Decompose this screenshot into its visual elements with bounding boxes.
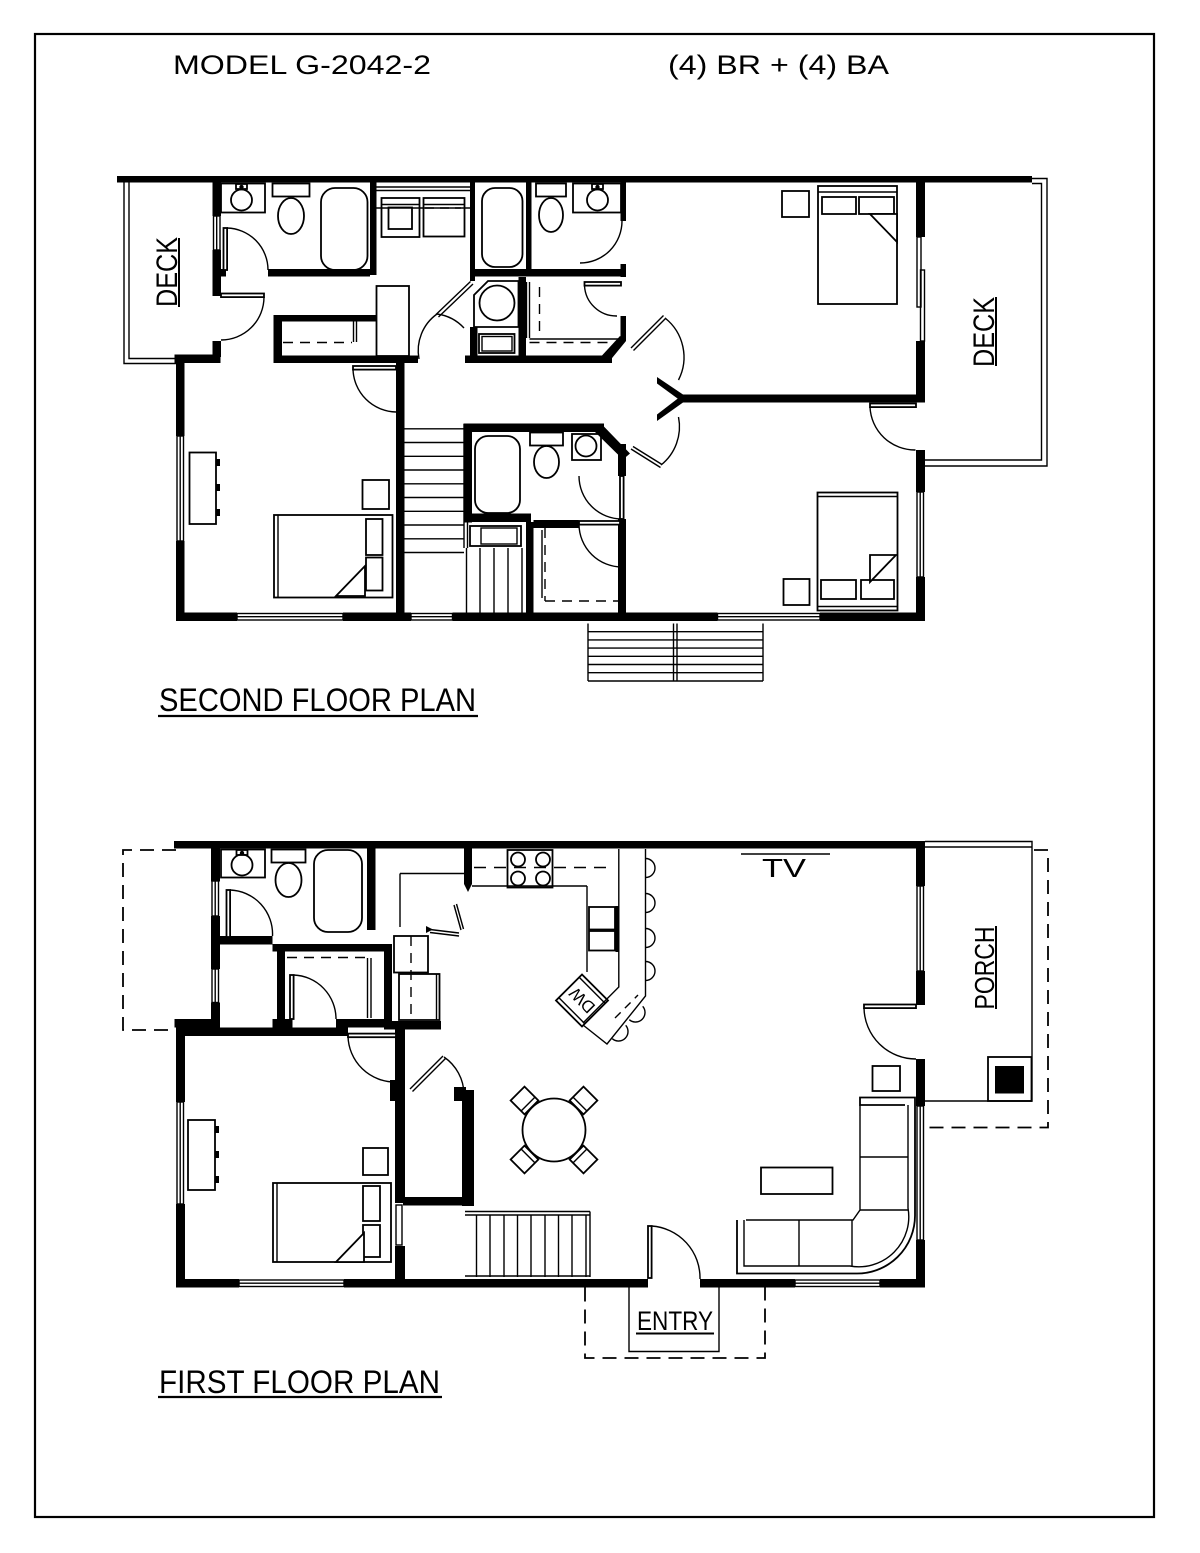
- svg-text:MODEL G-2042-2: MODEL G-2042-2: [173, 50, 431, 80]
- svg-text:FIRST FLOOR PLAN: FIRST FLOOR PLAN: [159, 1364, 440, 1400]
- svg-text:SECOND FLOOR PLAN: SECOND FLOOR PLAN: [159, 682, 476, 718]
- svg-text:TV: TV: [762, 853, 807, 883]
- svg-text:(4) BR + (4) BA: (4) BR + (4) BA: [668, 50, 889, 80]
- svg-text:ENTRY: ENTRY: [637, 1306, 713, 1336]
